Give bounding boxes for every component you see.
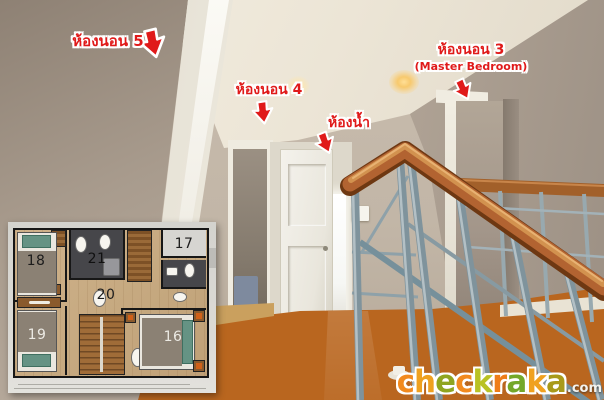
- plan-wardrobe: [127, 230, 152, 282]
- label-bathroom: ห้องน้ำ: [318, 115, 380, 133]
- room-number-20: 20: [91, 288, 121, 302]
- balcony-line: [18, 384, 190, 385]
- floorplan-inset: 18 21 17 20 19 16: [8, 222, 216, 393]
- plan-sink: [166, 267, 178, 276]
- plan-nightstand: [193, 360, 205, 372]
- annotated-hallway-photo: ห้องนอน 5 ห้องนอน 4 ห้องน้ำ ห้องนอน 3 (M…: [0, 0, 604, 400]
- door-panel: [288, 246, 326, 318]
- red-arrow-icon: [249, 98, 276, 127]
- plan-stairs: [79, 314, 125, 375]
- master-door-jamb: [445, 100, 456, 336]
- logo-letter: a: [546, 364, 566, 400]
- logo-letter: k: [526, 364, 546, 400]
- logo-letter: k: [472, 364, 492, 400]
- bedroom4-doorway: [228, 140, 273, 332]
- plan-pillow: [22, 354, 51, 367]
- logo-letter: r: [492, 364, 506, 400]
- plan-nightstand: [125, 312, 136, 323]
- room-number-17: 17: [169, 237, 199, 251]
- bathroom-door: [280, 149, 333, 335]
- label-bedroom3-line1: ห้องนอน 3: [438, 42, 505, 58]
- plan-wall: [69, 230, 71, 278]
- checkraka-logo: checkraka: [397, 364, 566, 400]
- room-number-16: 16: [158, 330, 188, 344]
- balcony-line: [14, 388, 206, 389]
- door-knob: [323, 246, 328, 251]
- plan-toilet: [184, 263, 195, 278]
- plan-wall: [69, 278, 125, 280]
- floorplan-drawing: 18 21 17 20 19 16: [13, 228, 209, 378]
- plan-wall: [123, 230, 125, 278]
- logo-letter: c: [397, 364, 414, 400]
- bedroom4-bed: [234, 276, 258, 308]
- logo-letter: e: [435, 364, 455, 400]
- label-bedroom4: ห้องนอน 4: [231, 82, 307, 100]
- logo-letter: a: [506, 364, 526, 400]
- plan-lamp: [173, 292, 187, 302]
- room-number-21: 21: [82, 252, 112, 266]
- label-master-bedroom: ห้องนอน 3 (Master Bedroom): [414, 42, 528, 73]
- plan-dresser: [17, 297, 61, 308]
- door-panel: [288, 164, 326, 226]
- master-door-opening: [456, 101, 503, 336]
- bathroom-doorway: [270, 142, 352, 338]
- logo-suffix: .com: [567, 381, 602, 396]
- plan-wall: [65, 306, 67, 375]
- plan-pillow: [22, 235, 51, 248]
- plan-toilet: [75, 236, 87, 253]
- label-bedroom3-line2: (Master Bedroom): [414, 60, 528, 74]
- plan-toilet: [99, 234, 111, 250]
- room-number-19: 19: [22, 328, 52, 342]
- logo-letter: c: [455, 364, 472, 400]
- room-number-18: 18: [21, 254, 51, 268]
- label-bedroom5: ห้องนอน 5: [58, 32, 158, 51]
- master-bedroom-doorway: [436, 91, 522, 336]
- light-switch: [352, 206, 369, 221]
- checkraka-watermark: checkraka .com: [397, 364, 602, 400]
- plan-nightstand: [193, 310, 205, 322]
- logo-letter: h: [414, 364, 435, 400]
